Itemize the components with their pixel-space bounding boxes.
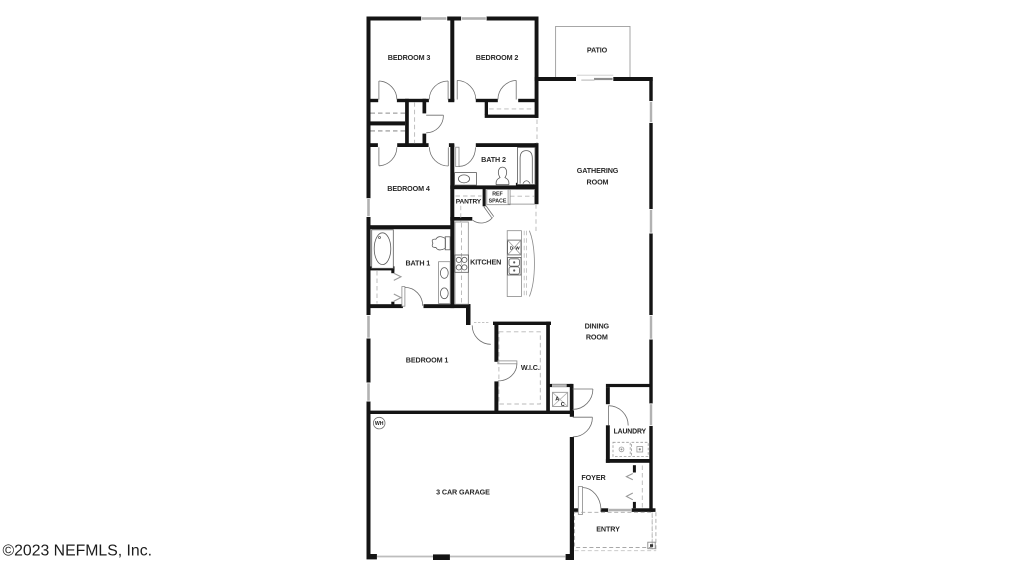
svg-text:SPACE: SPACE	[489, 198, 507, 204]
svg-text:BEDROOM 2: BEDROOM 2	[476, 53, 519, 62]
svg-text:REF: REF	[492, 192, 503, 198]
svg-text:GATHERING: GATHERING	[577, 166, 619, 175]
svg-text:W.I.C.: W.I.C.	[521, 363, 540, 372]
svg-text:D: D	[510, 245, 513, 250]
svg-text:KITCHEN: KITCHEN	[470, 258, 501, 267]
svg-text:LAUNDRY: LAUNDRY	[614, 429, 647, 436]
svg-text:C: C	[561, 402, 565, 408]
svg-text:BEDROOM 1: BEDROOM 1	[406, 356, 449, 365]
svg-text:BEDROOM 3: BEDROOM 3	[388, 53, 431, 62]
svg-text:PANTRY: PANTRY	[456, 199, 482, 206]
svg-text:ROOM: ROOM	[587, 178, 609, 187]
svg-text:BEDROOM 4: BEDROOM 4	[387, 184, 430, 193]
svg-text:3 CAR GARAGE: 3 CAR GARAGE	[436, 488, 490, 497]
svg-text:WH: WH	[375, 421, 384, 427]
svg-text:PATIO: PATIO	[587, 46, 608, 55]
svg-text:DINING: DINING	[585, 322, 610, 331]
svg-text:W: W	[516, 245, 521, 250]
svg-text:BATH 2: BATH 2	[481, 155, 506, 164]
svg-text:©2023 NEFMLS, Inc.: ©2023 NEFMLS, Inc.	[3, 543, 152, 560]
svg-text:ENTRY: ENTRY	[596, 525, 620, 534]
svg-text:BATH 1: BATH 1	[405, 259, 430, 268]
svg-text:ROOM: ROOM	[586, 333, 608, 342]
svg-text:A: A	[555, 397, 559, 403]
svg-text:FOYER: FOYER	[581, 473, 606, 482]
